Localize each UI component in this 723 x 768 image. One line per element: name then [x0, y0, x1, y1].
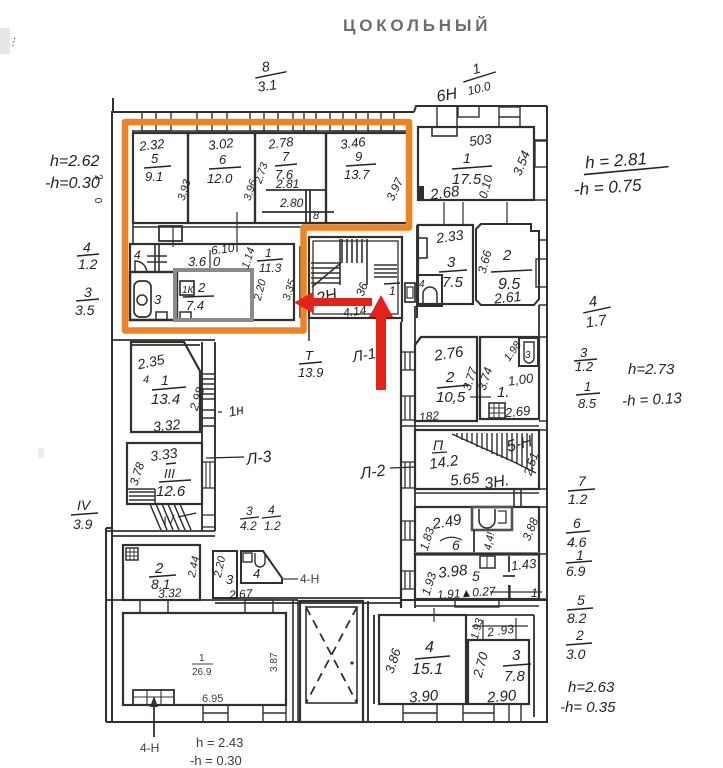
svg-text:3: 3 [154, 292, 162, 307]
svg-text:3.9: 3.9 [73, 516, 93, 532]
svg-text:3.32: 3.32 [158, 585, 183, 601]
svg-text:182: 182 [418, 408, 440, 424]
svg-text:2: 2 [445, 369, 455, 386]
svg-text:2.80: 2.80 [279, 196, 304, 210]
svg-text:12.0: 12.0 [207, 171, 233, 186]
svg-text:7: 7 [282, 149, 290, 164]
svg-text:6: 6 [219, 152, 227, 167]
svg-text:11.3: 11.3 [259, 261, 282, 275]
svg-text:1.2: 1.2 [568, 491, 588, 507]
svg-text:1.43: 1.43 [510, 556, 537, 574]
svg-text:10,5: 10,5 [436, 389, 466, 406]
svg-text:503: 503 [468, 131, 493, 149]
svg-text:4.2: 4.2 [240, 519, 257, 533]
svg-text:1.7: 1.7 [585, 312, 609, 332]
svg-text:3.87: 3.87 [269, 652, 280, 672]
svg-text:3: 3 [226, 572, 234, 587]
svg-text:1.: 1. [497, 384, 510, 401]
svg-text:6: 6 [573, 515, 581, 531]
svg-text:-h = 0.13: -h = 0.13 [622, 390, 683, 410]
svg-text:2.90: 2.90 [485, 687, 517, 707]
svg-text:1.2: 1.2 [78, 256, 98, 272]
svg-text:1: 1 [584, 379, 591, 394]
svg-text:4: 4 [419, 279, 425, 290]
svg-text:4-Н: 4-Н [300, 572, 319, 586]
svg-text:8.2: 8.2 [567, 610, 587, 626]
svg-text:3.1: 3.1 [256, 76, 278, 95]
svg-text:4: 4 [143, 374, 149, 386]
svg-text:26.9: 26.9 [192, 667, 212, 678]
svg-text:4-Н: 4-Н [140, 741, 159, 755]
svg-text:2.61: 2.61 [492, 288, 522, 307]
svg-text:7: 7 [578, 473, 587, 489]
svg-text:8.5: 8.5 [578, 396, 597, 411]
svg-text:6Н: 6Н [435, 85, 459, 105]
svg-text:2.69: 2.69 [503, 403, 531, 421]
svg-text:Л-2: Л-2 [358, 462, 386, 482]
svg-text:2: 2 [575, 627, 584, 643]
svg-text:5: 5 [472, 568, 480, 584]
svg-text:1: 1 [576, 547, 584, 563]
svg-text:1: 1 [531, 586, 538, 600]
svg-text:4: 4 [253, 566, 260, 581]
svg-text:5: 5 [151, 151, 159, 166]
svg-text:9: 9 [355, 149, 362, 164]
svg-text:8: 8 [313, 210, 320, 222]
svg-text:1: 1 [265, 246, 272, 260]
svg-text:13.9: 13.9 [298, 365, 323, 380]
svg-text:7.8: 7.8 [504, 668, 526, 685]
svg-text:3.98: 3.98 [437, 562, 468, 582]
svg-text:1: 1 [161, 372, 169, 388]
svg-text:7.4: 7.4 [186, 298, 204, 313]
svg-text:13.7: 13.7 [344, 167, 370, 182]
svg-text:1.2: 1.2 [264, 519, 281, 533]
svg-text:1: 1 [463, 150, 471, 166]
svg-text:5.65: 5.65 [449, 470, 480, 490]
svg-text:3: 3 [525, 350, 531, 361]
svg-text:4: 4 [83, 239, 91, 255]
svg-text:2: 2 [502, 247, 512, 264]
svg-text:3.90: 3.90 [408, 687, 439, 707]
svg-text:2: 2 [197, 280, 206, 295]
svg-text:12.6: 12.6 [156, 483, 186, 500]
svg-text:IV: IV [77, 497, 92, 513]
svg-text:Л-3: Л-3 [244, 448, 272, 468]
svg-text:2.81: 2.81 [275, 177, 299, 191]
svg-text:3: 3 [84, 284, 92, 300]
svg-text:3: 3 [447, 254, 456, 271]
svg-text:III: III [164, 466, 175, 481]
svg-text:-h = 0.30: -h = 0.30 [190, 753, 242, 768]
svg-text:3: 3 [246, 504, 253, 518]
svg-text:1: 1 [199, 653, 205, 664]
svg-text:3.6: 3.6 [188, 254, 207, 269]
svg-text:3: 3 [580, 345, 588, 360]
svg-text:4: 4 [425, 639, 434, 656]
svg-text:ЦОКОЛЬНЫЙ: ЦОКОЛЬНЫЙ [343, 16, 491, 35]
svg-text:-h= 0.35: -h= 0.35 [560, 699, 616, 716]
svg-text:3.0: 3.0 [566, 646, 586, 662]
svg-text:h = 2.43: h = 2.43 [196, 735, 243, 750]
svg-text:h=2.63: h=2.63 [568, 679, 615, 696]
svg-text:3.5: 3.5 [75, 302, 95, 318]
svg-text:2: 2 [154, 560, 164, 577]
svg-text:6.9: 6.9 [566, 563, 586, 579]
svg-text:7.5: 7.5 [442, 274, 464, 291]
svg-text:1.2: 1.2 [575, 359, 594, 374]
svg-text:П: П [433, 437, 444, 453]
svg-text:h=2.62: h=2.62 [50, 153, 99, 170]
svg-text:Т: Т [305, 348, 314, 363]
svg-text:3.32: 3.32 [152, 416, 181, 435]
svg-text:15.1: 15.1 [412, 661, 443, 678]
svg-text:13.4: 13.4 [151, 391, 180, 408]
svg-text:1: 1 [389, 284, 396, 298]
svg-text:1К: 1К [182, 285, 195, 296]
svg-text:4: 4 [134, 248, 141, 262]
svg-text:h=2.73: h=2.73 [628, 361, 675, 378]
svg-text:6: 6 [452, 537, 460, 553]
svg-text:9.1: 9.1 [145, 169, 163, 184]
svg-text:5: 5 [577, 592, 585, 608]
svg-text:3: 3 [512, 647, 521, 664]
svg-text:3.46: 3.46 [339, 134, 367, 152]
svg-text:6.95: 6.95 [202, 693, 223, 705]
svg-text:3.02: 3.02 [207, 135, 235, 153]
svg-text:-h=0.30: -h=0.30 [45, 175, 100, 192]
svg-text:4: 4 [268, 503, 275, 517]
